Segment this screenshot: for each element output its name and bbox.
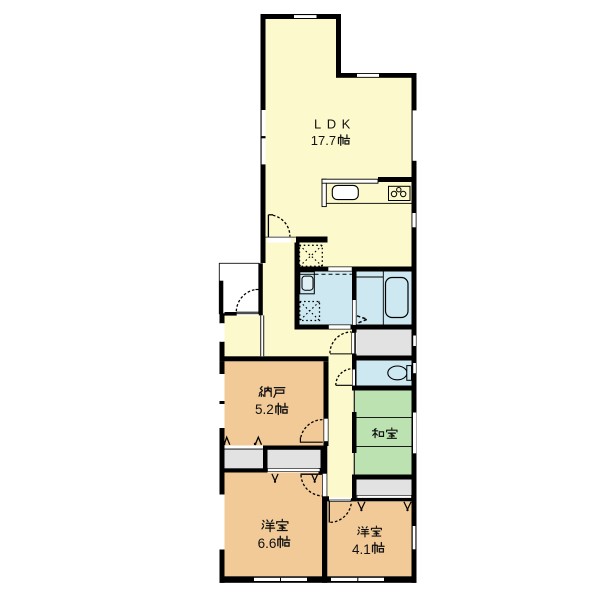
svg-text:6.6: 6.6 <box>258 536 277 551</box>
svg-text:5.2: 5.2 <box>255 402 274 417</box>
svg-text:4.1: 4.1 <box>352 542 371 557</box>
svg-text:17.7: 17.7 <box>311 133 336 148</box>
svg-text:LDK: LDK <box>314 116 356 131</box>
